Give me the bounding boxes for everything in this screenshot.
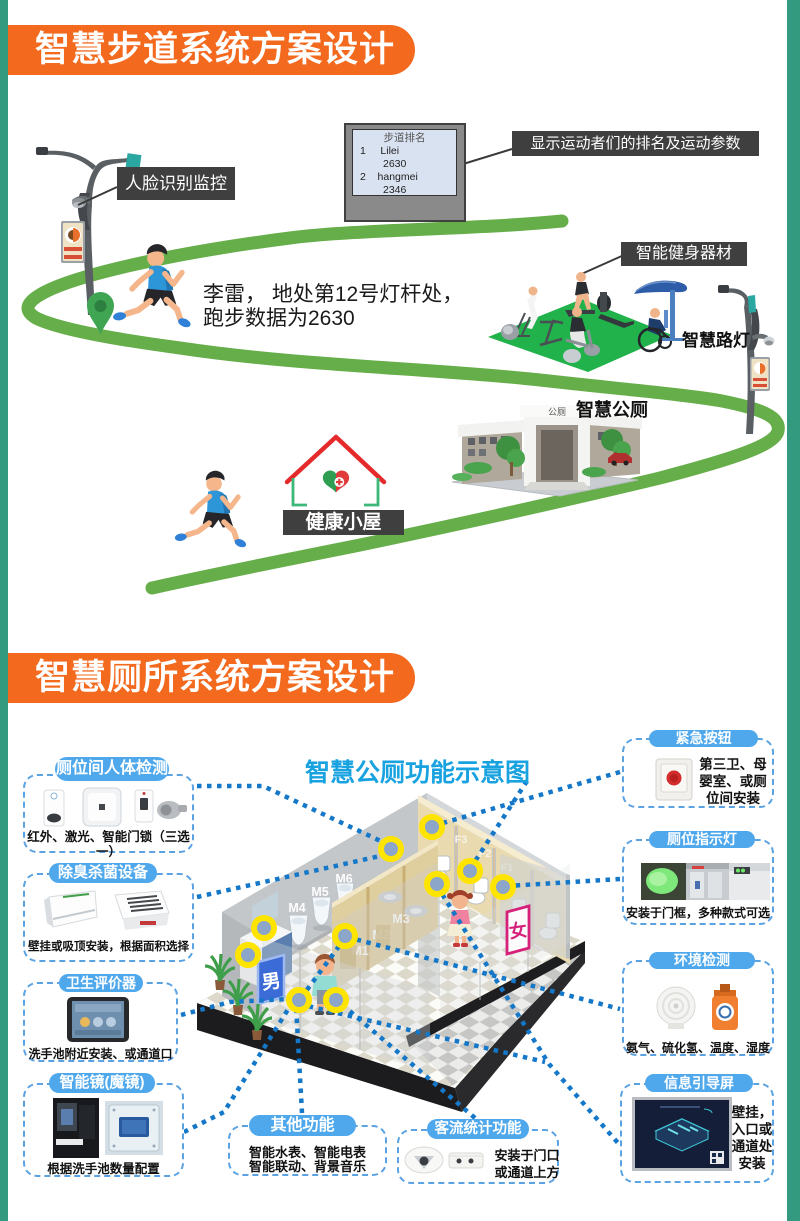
svg-text:男: 男 [260,970,282,994]
svg-text:M4: M4 [288,901,305,915]
svg-text:女: 女 [508,919,529,942]
svg-text:F3: F3 [455,834,468,846]
svg-text:公厕: 公厕 [548,407,566,417]
